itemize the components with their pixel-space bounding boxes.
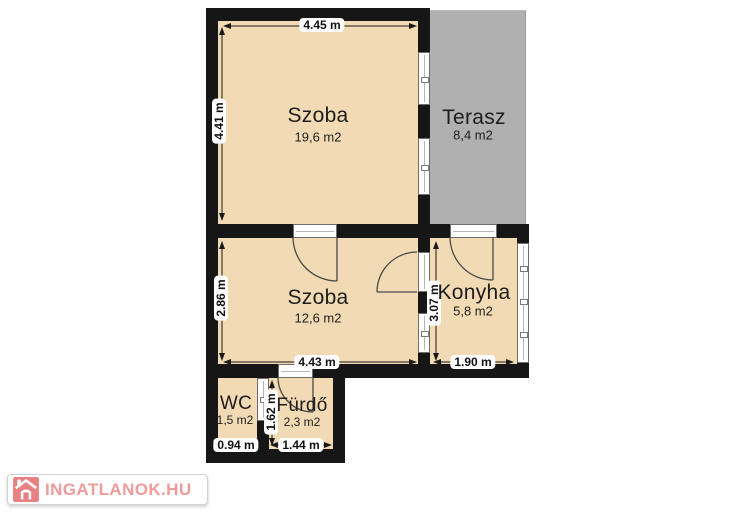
room-label-furdo: Fürdő	[276, 395, 327, 417]
room-label-wc: WC	[220, 393, 252, 415]
room-label-konyha: Konyha	[437, 281, 510, 305]
dim-label-445: 4.45 m	[299, 18, 344, 32]
dim-label-190: 1.90 m	[450, 355, 495, 369]
room-area-konyha: 5,8 m2	[453, 304, 493, 319]
dim-label-443: 4.43 m	[294, 355, 339, 369]
room-label-szoba-2: Szoba	[287, 286, 348, 310]
room-label-terasz: Terasz	[442, 106, 506, 130]
room-area-szoba-2: 12,6 m2	[295, 311, 342, 326]
house-icon	[13, 477, 39, 502]
room-area-furdo: 2,3 m2	[284, 415, 321, 429]
room-area-szoba-1: 19,6 m2	[295, 130, 342, 145]
ingatlanok-logo: INGATLANOK.HU	[7, 474, 208, 505]
door-swings-and-dimension-lines	[0, 0, 730, 516]
logo-text: INGATLANOK.HU	[45, 480, 192, 500]
room-area-wc: 1,5 m2	[217, 413, 254, 427]
room-label-szoba-1: Szoba	[287, 104, 348, 128]
dimension-line-group	[216, 26, 513, 445]
dim-label-094: 0.94 m	[213, 438, 258, 452]
floorplan-canvas: 4.45 m 4.41 m 2.86 m 4.43 m 3.07 m 1.90 …	[0, 0, 730, 516]
dim-label-286: 2.86 m	[214, 275, 228, 320]
room-area-terasz: 8,4 m2	[453, 128, 493, 143]
dim-label-441: 4.41 m	[212, 98, 226, 143]
dim-label-144: 1.44 m	[278, 438, 323, 452]
